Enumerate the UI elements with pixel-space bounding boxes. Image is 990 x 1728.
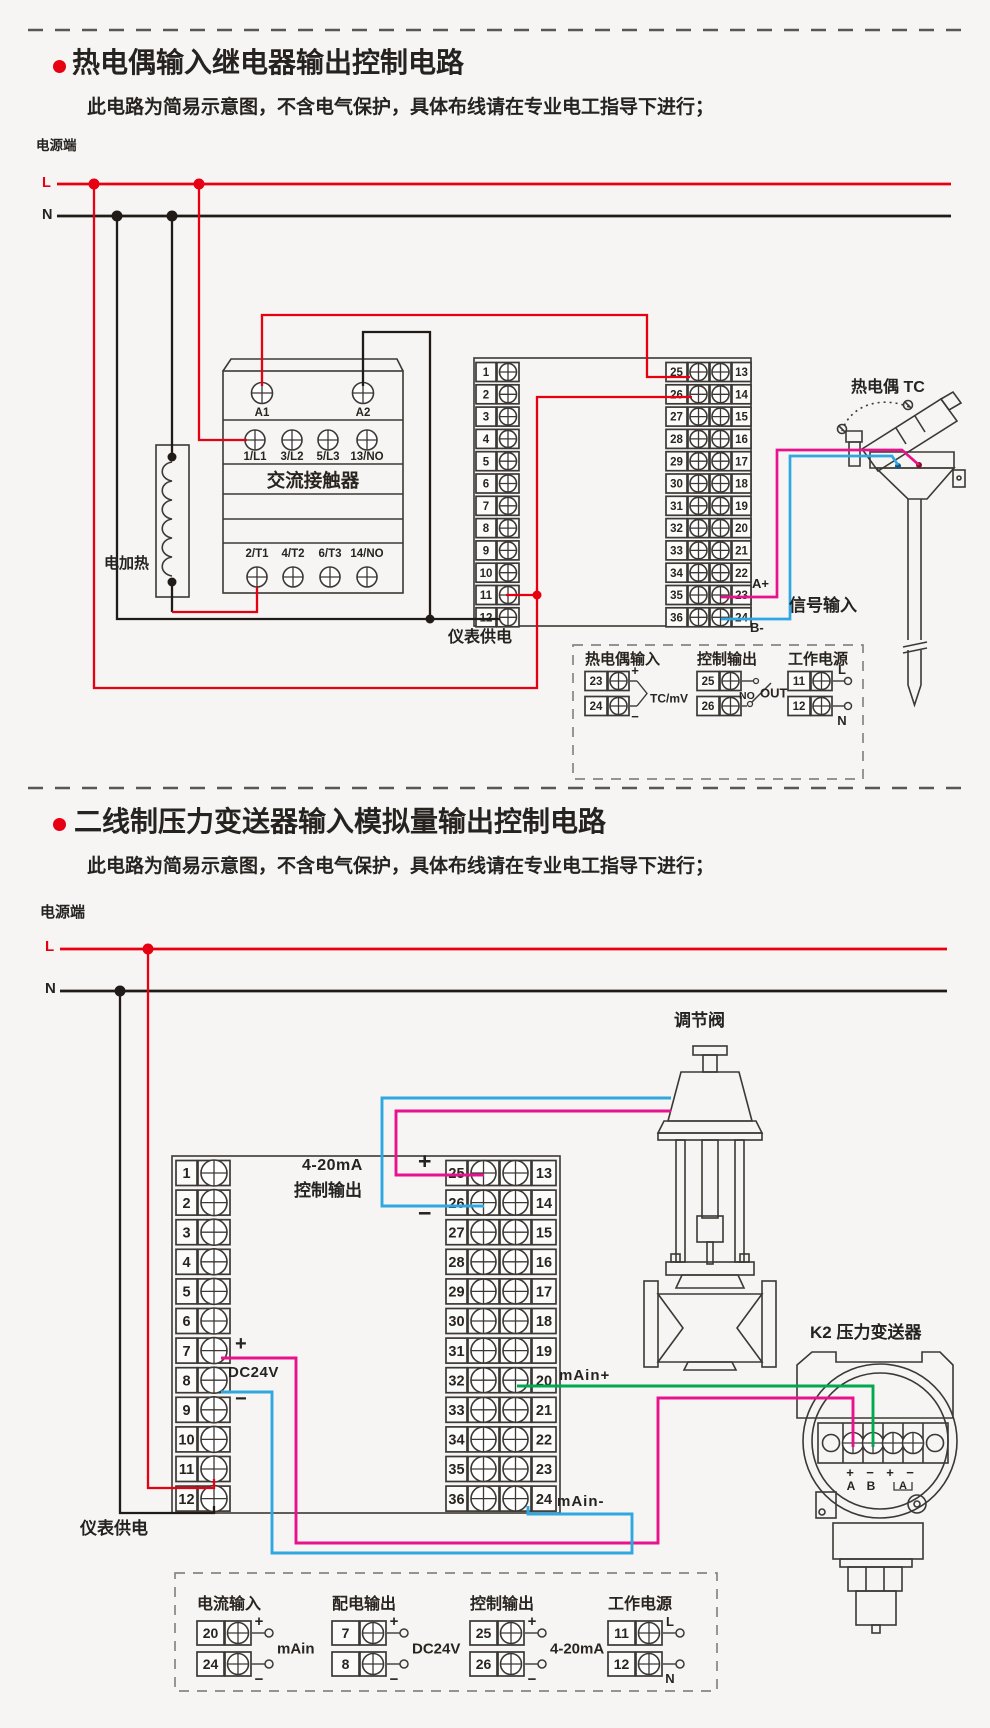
diagram-text: A2 [356,407,371,419]
contactor-terminals: A1A21/L13/L25/L313/NO交流接触器2/T14/T26/T314… [243,383,383,588]
diagram-text: 配电输出 [332,1594,396,1613]
diagram-text: 19 [536,1344,552,1360]
diagram-text: 32 [448,1373,464,1389]
diagram-text: − [866,1465,874,1480]
diagram-text: 33 [670,546,683,558]
d1-a-plus-label: A+ [752,577,769,592]
diagram-text: 22 [536,1433,552,1449]
diagram-text: 25 [702,676,715,688]
d2-transmitter-label: K2 压力变送器 [810,1323,921,1343]
heater-element [156,445,189,597]
diagram-text: NO [739,690,755,702]
diagram-text: OUT [760,686,788,701]
diagram-text: 7 [182,1344,190,1360]
diagram-text: + [886,1465,894,1480]
d2-output-label: 控制输出 [294,1181,362,1201]
diagram-text: 13/NO [350,451,383,463]
diagram-text: − [390,1671,399,1688]
diagram-text: 20 [203,1625,219,1641]
diagram-text: DC24V [412,1641,460,1658]
strip-d1-right: 2513261427152816291730183119322033213422… [666,363,751,627]
legend-1: 热电偶输入2324TC/mV+−控制输出2526NOOUT工作电源1112LN [585,650,852,728]
diagram-text: 控制输出 [470,1594,534,1613]
d2-line-L-label: L [45,938,54,955]
diagram-text: 15 [735,412,748,424]
diagram-text: 30 [670,479,683,491]
d1-meter-power-label: 仪表供电 [448,629,512,647]
diagram-text: 4 [483,434,490,446]
diagram-text: 7 [342,1625,350,1641]
d2-25-plus: + [418,1148,431,1174]
diagram-text: 9 [182,1403,190,1419]
diagram-text: 交流接触器 [267,470,360,491]
diagram-text: 26 [448,1196,464,1212]
d1-b-minus-label: B- [750,621,764,636]
wire-20-to-transmitter [517,1386,873,1447]
diagram-text: 4 [182,1255,190,1271]
diagram-text: 3 [182,1225,190,1241]
diagram-text: 18 [536,1314,552,1330]
d1-line-N-label: N [42,207,52,224]
section2-note: 此电路为简易示意图，不含电气保护，具体布线请在专业电工指导下进行； [87,856,714,878]
diagram-text: + [528,1613,537,1630]
diagram-text: 8 [342,1656,350,1672]
diagram-text: 电流输入 [197,1594,261,1613]
d2-7-plus: + [235,1333,247,1356]
d2-output-range-label: 4-20mA [302,1157,363,1175]
diagram-text: B [867,1479,876,1493]
diagram-text: 9 [483,546,489,558]
diagram-text: L [838,662,846,677]
diagram-text: N [837,713,846,728]
diagram-text: + [255,1613,264,1630]
wiring-diagram-page: 1234567891011122513261427152816291730183… [0,0,990,1728]
diagram-text: 26 [702,701,715,713]
diagram-text: 3/L2 [280,451,303,463]
section2-bullet [53,818,66,831]
diagram-text: 12 [178,1492,194,1508]
diagram-text: 4-20mA [550,1641,604,1658]
strip-d1-left: 123456789101112 [476,363,519,627]
diagram-text: 14 [735,389,748,401]
diagram-text: TC/mV [650,692,688,706]
diagram-text: 11 [480,590,493,602]
diagram-text: 34 [670,568,683,580]
diagram-text: L [666,1614,674,1629]
wire-heater-2T1 [172,587,257,612]
diagram-text: 5 [483,456,490,468]
diagram-text: 6 [182,1314,190,1330]
diagram-text: 28 [670,434,683,446]
device-drawings [156,358,965,1691]
diagram-text: 35 [448,1462,464,1478]
diagram-text: − [906,1465,914,1480]
diagram-text: 2 [483,389,489,401]
diagram-text: 17 [735,456,748,468]
diagram-text: + [631,663,639,678]
diagram-text: 20 [735,523,748,535]
diagram-text: 11 [614,1625,629,1641]
section1-title: 热电偶输入继电器输出控制电路 [72,47,464,79]
diagram-text: 32 [670,523,683,535]
section2-title: 二线制压力变送器输入模拟量输出控制电路 [74,806,606,838]
diagram-text: 35 [670,590,683,602]
diagram-text: − [631,709,639,724]
d1-heater-label: 电加热 [104,555,149,572]
d1-signal-input-label: 信号输入 [789,596,857,616]
diagram-text: − [255,1671,264,1688]
diagram-text: 29 [448,1285,464,1301]
diagram-text: 2 [182,1196,190,1212]
diagram-text: 16 [536,1255,552,1271]
diagram-text: 14/NO [350,548,383,560]
diagram-text: 36 [670,612,683,624]
diagram-text: 14 [536,1196,552,1212]
diagram-text: − [528,1671,537,1688]
d1-line-L-label: L [42,175,51,192]
diagram-text: 24 [536,1492,552,1508]
diagram-text: 4/T2 [281,548,304,560]
diagram-text: 28 [448,1255,464,1271]
diagram-text: 30 [448,1314,464,1330]
d2-valve-label: 调节阀 [674,1011,725,1031]
terminal-strips: 1234567891011122513261427152816291730183… [176,363,751,1512]
diagram-text: 33 [448,1403,464,1419]
diagram-text: A1 [255,407,270,419]
diagram-text: 13 [735,367,748,379]
diagram-text: 2/T1 [245,548,269,560]
diagram-text: 16 [735,434,748,446]
diagram-text: 控制输出 [697,650,757,668]
strip-d2-right: 2513261427152816291730183119322033213422… [446,1161,556,1512]
diagram-text: 13 [536,1166,552,1182]
diagram-text: 工作电源 [608,1594,672,1613]
diagram-text: 10 [480,568,493,580]
diagram-text: 5 [182,1285,190,1301]
d2-26-minus: − [418,1200,431,1226]
d2-dc24v-label: DC24V [228,1364,279,1381]
diagram-text: 1/L1 [243,451,267,463]
thermocouple [838,392,966,705]
diagram-text: 31 [670,501,683,513]
diagram-text: 热电偶输入 [585,650,660,668]
diagram-text: 5/L3 [316,451,339,463]
diagram-text: 11 [793,676,806,688]
diagram-text: 1 [182,1166,190,1182]
diagram-text: 27 [670,412,683,424]
diagram-text: 23 [536,1462,552,1478]
diagram-text: 19 [735,501,748,513]
d1-power-label: 电源端 [36,138,77,154]
d2-8-minus: − [235,1388,247,1411]
section1-note: 此电路为简易示意图，不含电气保护，具体布线请在专业电工指导下进行； [87,97,714,119]
heater-coil [162,462,172,576]
diagram-text: 1 [483,367,490,379]
diagram-text: N [665,1671,674,1686]
diagram-text: 8 [182,1373,190,1389]
diagram-text: mAin [277,1641,315,1658]
control-valve [644,1046,776,1370]
diagram-text: + [390,1613,399,1630]
diagram-text: 31 [448,1344,464,1360]
diagram-text: 24 [590,701,603,713]
pressure-transmitter [797,1352,957,1633]
diagram-text: 18 [735,479,748,491]
diagram-text: 23 [590,676,603,688]
d1-tc-label: 热电偶 TC [851,379,925,397]
d2-meter-power-label: 仪表供电 [80,1519,148,1539]
d2-line-N-label: N [45,980,56,997]
diagram-text: 21 [536,1403,552,1419]
diagram-text: 25 [476,1625,492,1641]
wire-8-to-24 [221,1392,632,1553]
diagram-text: A [847,1479,856,1493]
diagram-text: 36 [448,1492,464,1508]
diagram-text: 8 [483,523,490,535]
d2-power-label: 电源端 [40,904,85,921]
diagram-text: 15 [536,1225,552,1241]
tc-cable-loop [842,402,909,431]
diagram-text: 27 [448,1225,464,1241]
diagram-text: 3 [483,412,489,424]
diagram-text: 11 [179,1462,194,1478]
diagram-text: 7 [483,501,489,513]
diagram-text: 17 [536,1285,552,1301]
diagram-text: 12 [614,1656,630,1672]
diagram-text: 26 [476,1656,492,1672]
d2-main-plus-label: mAin+ [559,1367,610,1384]
diagram-text: 22 [735,568,748,580]
diagram-text: 26 [670,389,683,401]
strip-d2-left: 123456789101112 [176,1160,230,1512]
diagram-text: 21 [735,546,748,558]
diagram-text: 29 [670,456,683,468]
d2-main-minus-label: mAin- [557,1493,605,1510]
section1-bullet [53,60,66,73]
diagram-text: + [846,1465,854,1480]
diagram-text: 24 [203,1656,219,1672]
diagram-text: 6 [483,479,489,491]
legend-2: 电流输入2024+−mAin配电输出78+−DC24V控制输出2526+−4-2… [197,1594,684,1688]
diagram-text: 12 [793,701,806,713]
diagram-text: A [899,1480,907,1492]
diagram-text: 10 [178,1433,194,1449]
diagram-text: 34 [448,1433,464,1449]
diagram-text: 6/T3 [318,548,341,560]
